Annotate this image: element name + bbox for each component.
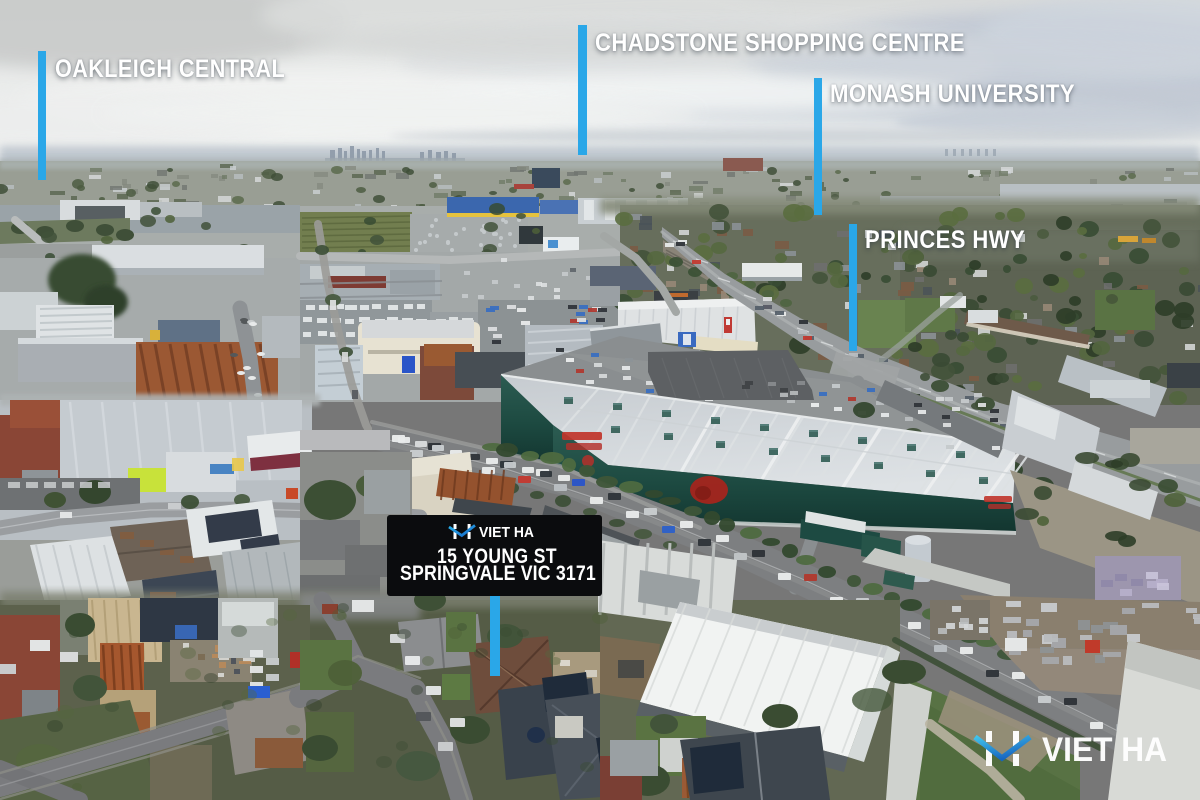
svg-text:VIET HA: VIET HA [479, 524, 534, 541]
svg-text:VIET HA: VIET HA [1042, 731, 1167, 769]
